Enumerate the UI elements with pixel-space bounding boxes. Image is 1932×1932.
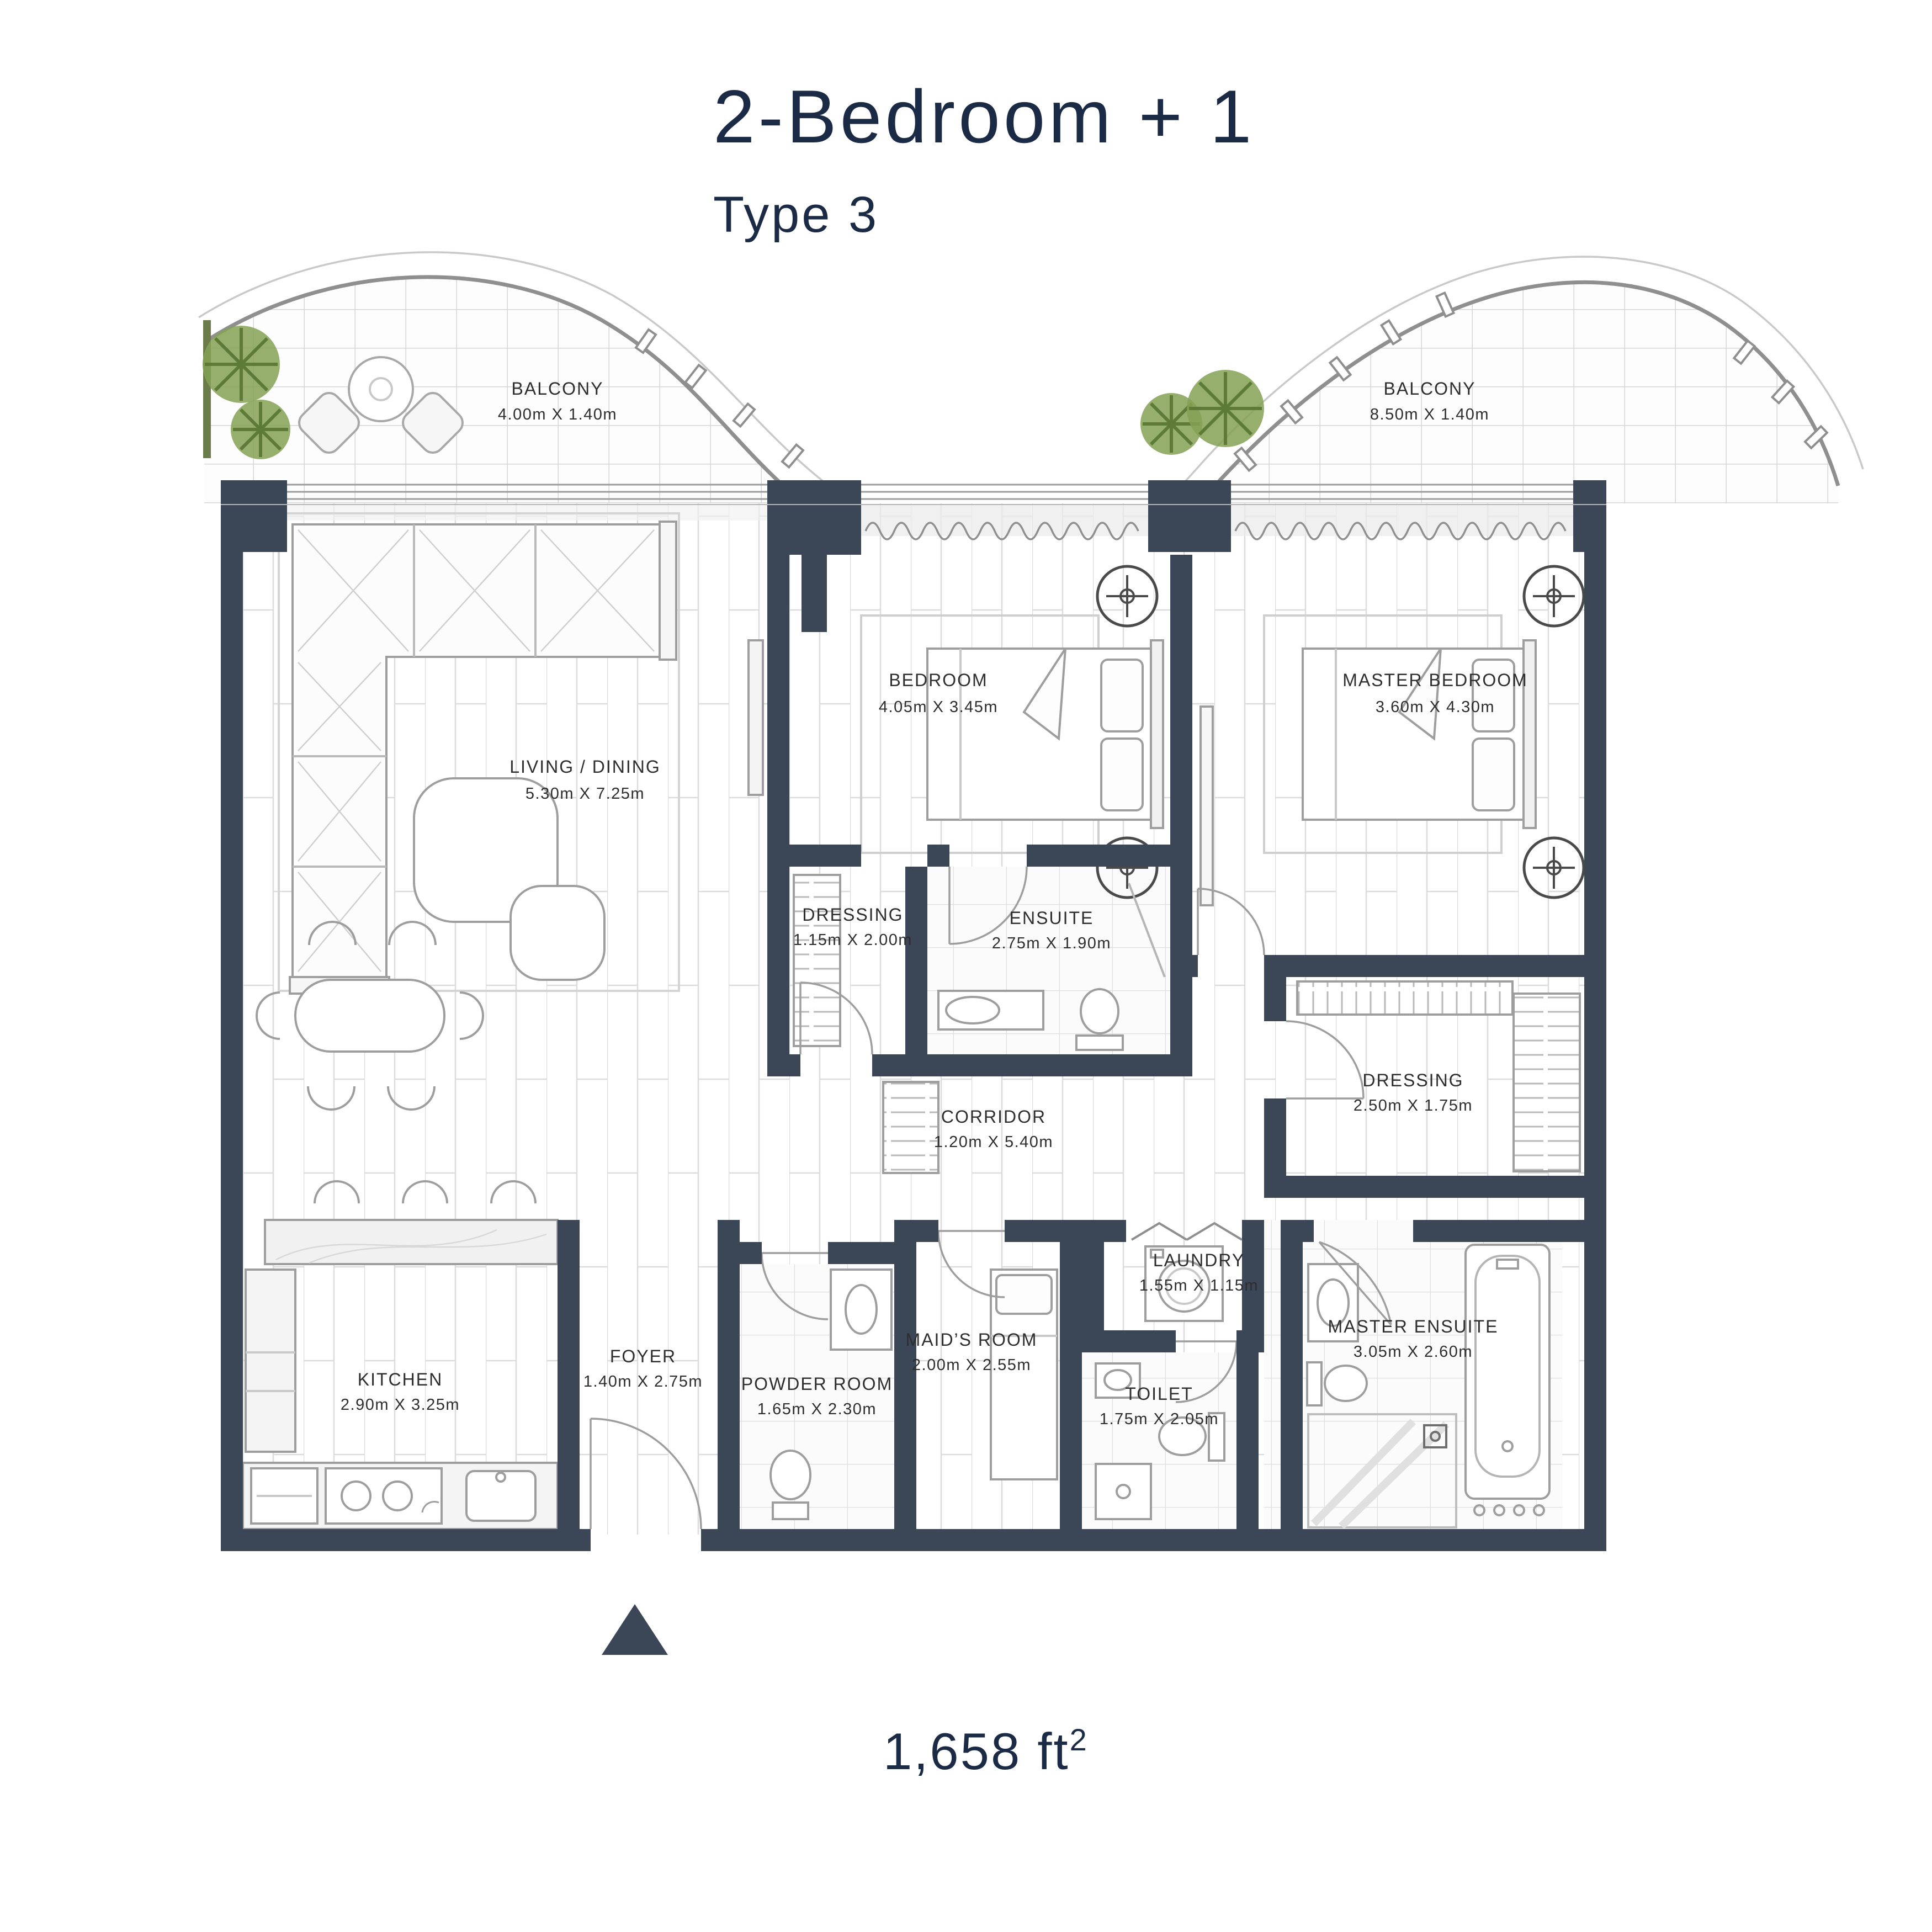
area-label: 1,658 ft2 (883, 1722, 1089, 1780)
wardrobe-master-right (1514, 994, 1580, 1171)
wc-bowl (1081, 989, 1118, 1033)
room-label-foyer: FOYER (610, 1346, 676, 1366)
corridor-cabinet (883, 1082, 938, 1173)
planter-strip (203, 320, 211, 458)
room-dims-balcony-right: 8.50m X 1.40m (1370, 406, 1489, 423)
room-label-powder-room: POWDER ROOM (741, 1374, 893, 1394)
coffee-table-small (511, 886, 604, 980)
page-title: 2-Bedroom + 1 (713, 75, 1255, 158)
area-value: 1,658 ft (883, 1722, 1070, 1780)
room-label-laundry: LAUNDRY (1153, 1250, 1245, 1270)
pillow (1101, 739, 1143, 810)
room-label-master-bedroom: MASTER BEDROOM (1342, 670, 1528, 690)
room-dims-living-dining: 5.30m X 7.25m (526, 785, 645, 803)
room-label-corridor: CORRIDOR (941, 1107, 1046, 1127)
vanity (938, 991, 1043, 1029)
area-superscript: 2 (1070, 1722, 1089, 1757)
room-label-dressing-master: DRESSING (1362, 1070, 1463, 1090)
room-label-kitchen: KITCHEN (358, 1370, 443, 1389)
wc-bowl (771, 1451, 810, 1499)
room-dims-powder-room: 1.65m X 2.30m (757, 1400, 877, 1418)
room-dims-laundry: 1.55m X 1.15m (1139, 1277, 1259, 1294)
plant-icon (1187, 370, 1264, 447)
page-subtitle: Type 3 (713, 187, 879, 243)
room-label-balcony-right: BALCONY (1384, 379, 1476, 399)
ceiling-light-icon (1097, 566, 1157, 626)
wardrobe-master-top (1297, 981, 1512, 1015)
headboard (1151, 640, 1163, 828)
sink-icon (466, 1471, 535, 1521)
room-dims-dressing-master: 2.50m X 1.75m (1354, 1097, 1473, 1114)
tv-unit (749, 640, 763, 795)
room-label-toilet: TOILET (1125, 1384, 1193, 1404)
room-dims-toilet: 1.75m X 2.05m (1100, 1410, 1219, 1428)
entry-arrow (602, 1604, 668, 1655)
floorplan-page: 2-Bedroom + 1 Type 3 1,658 ft2 BALCONY 4… (0, 0, 1932, 1932)
room-label-balcony-left: BALCONY (512, 379, 604, 399)
room-label-bedroom: BEDROOM (889, 670, 988, 690)
headboard (1524, 640, 1536, 828)
room-dims-master-bedroom: 3.60m X 4.30m (1376, 698, 1495, 716)
pillow (1473, 739, 1514, 810)
ceiling-light-icon (1524, 838, 1584, 898)
room-label-master-ensuite: MASTER ENSUITE (1328, 1317, 1499, 1336)
room-dims-dressing-1: 1.15m X 2.00m (793, 931, 912, 949)
wc-tank (1307, 1362, 1321, 1405)
tall-kitchen-unit (246, 1270, 295, 1452)
pillow (1101, 660, 1143, 731)
room-dims-kitchen: 2.90m X 3.25m (341, 1396, 460, 1414)
room-dims-foyer: 1.40m X 2.75m (583, 1373, 703, 1390)
wc-tank (773, 1503, 808, 1519)
ceiling-light-icon (1524, 566, 1584, 626)
pillow (996, 1275, 1052, 1314)
wc-bowl (1325, 1366, 1367, 1401)
shower-tray (1096, 1464, 1151, 1519)
room-label-maids-room: MAID’S ROOM (906, 1330, 1038, 1350)
room-label-living-dining: LIVING / DINING (509, 757, 661, 777)
maids-furniture (991, 1270, 1057, 1479)
room-label-ensuite: ENSUITE (1010, 908, 1094, 928)
floor-plan-svg: 2-Bedroom + 1 Type 3 1,658 ft2 BALCONY 4… (0, 0, 1932, 1932)
room-dims-master-ensuite: 3.05m X 2.60m (1354, 1343, 1473, 1361)
mirror (1201, 707, 1213, 905)
vanity (831, 1270, 891, 1350)
balcony-tiles (204, 254, 1838, 503)
room-dims-balcony-left: 4.00m X 1.40m (498, 406, 617, 423)
room-dims-corridor: 1.20m X 5.40m (934, 1133, 1053, 1151)
room-dims-bedroom: 4.05m X 3.45m (879, 698, 998, 716)
room-dims-maids-room: 2.00m X 2.55m (912, 1356, 1031, 1374)
plant-icon (231, 400, 290, 459)
plant-icon (203, 326, 280, 403)
wc-tank (1076, 1036, 1123, 1050)
room-label-dressing-1: DRESSING (802, 905, 903, 925)
room-dims-ensuite: 2.75m X 1.90m (992, 935, 1111, 952)
